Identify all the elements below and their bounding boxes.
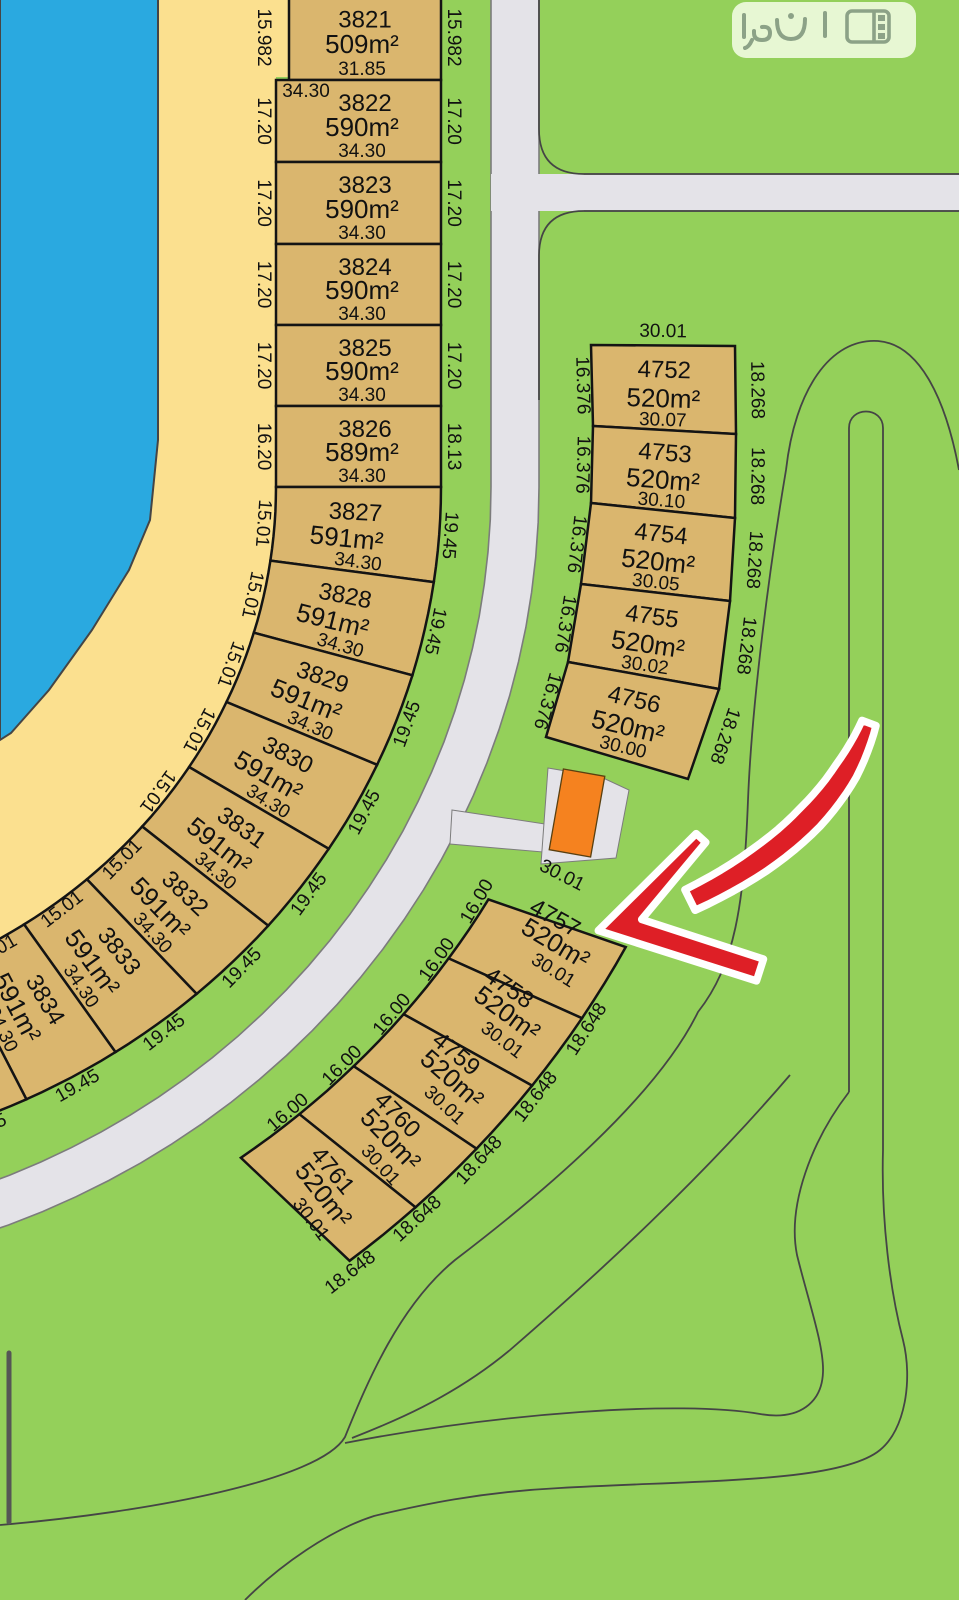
svg-text:34.30: 34.30 — [338, 223, 386, 244]
svg-text:30.07: 30.07 — [639, 409, 687, 431]
svg-text:34.30: 34.30 — [338, 304, 386, 325]
svg-text:17.20: 17.20 — [253, 97, 274, 145]
svg-text:17.20: 17.20 — [253, 179, 274, 227]
svg-text:16.376: 16.376 — [571, 356, 593, 415]
svg-text:17.20: 17.20 — [443, 261, 464, 309]
svg-text:590m²: 590m² — [325, 112, 399, 142]
svg-text:34.30: 34.30 — [338, 385, 386, 406]
svg-text:17.20: 17.20 — [443, 97, 464, 145]
svg-text:18.13: 18.13 — [443, 423, 464, 471]
svg-text:509m²: 509m² — [325, 29, 399, 59]
svg-text:590m²: 590m² — [325, 194, 399, 224]
svg-text:19.45: 19.45 — [438, 511, 462, 560]
svg-text:34.30: 34.30 — [338, 466, 386, 487]
svg-text:15.982: 15.982 — [443, 8, 464, 66]
svg-text:590m²: 590m² — [325, 275, 399, 305]
svg-text:589m²: 589m² — [325, 437, 399, 467]
svg-text:15.01: 15.01 — [251, 499, 275, 548]
svg-text:4752: 4752 — [637, 356, 691, 385]
svg-text:34.30: 34.30 — [338, 141, 386, 162]
svg-text:17.20: 17.20 — [443, 342, 464, 390]
svg-text:17.20: 17.20 — [443, 179, 464, 227]
svg-text:17.20: 17.20 — [253, 261, 274, 309]
svg-text:18.268: 18.268 — [746, 361, 768, 419]
svg-text:34.30: 34.30 — [282, 81, 330, 102]
svg-text:18.268: 18.268 — [746, 447, 768, 505]
svg-text:17.20: 17.20 — [253, 342, 274, 390]
svg-text:16.20: 16.20 — [253, 423, 274, 471]
svg-text:15.982: 15.982 — [253, 8, 274, 66]
svg-text:31.85: 31.85 — [338, 59, 386, 80]
svg-text:16.376: 16.376 — [571, 435, 594, 494]
svg-text:30.01: 30.01 — [639, 321, 687, 343]
svg-text:18.268: 18.268 — [742, 530, 766, 589]
svg-text:30.10: 30.10 — [637, 489, 686, 514]
svg-text:590m²: 590m² — [325, 356, 399, 386]
